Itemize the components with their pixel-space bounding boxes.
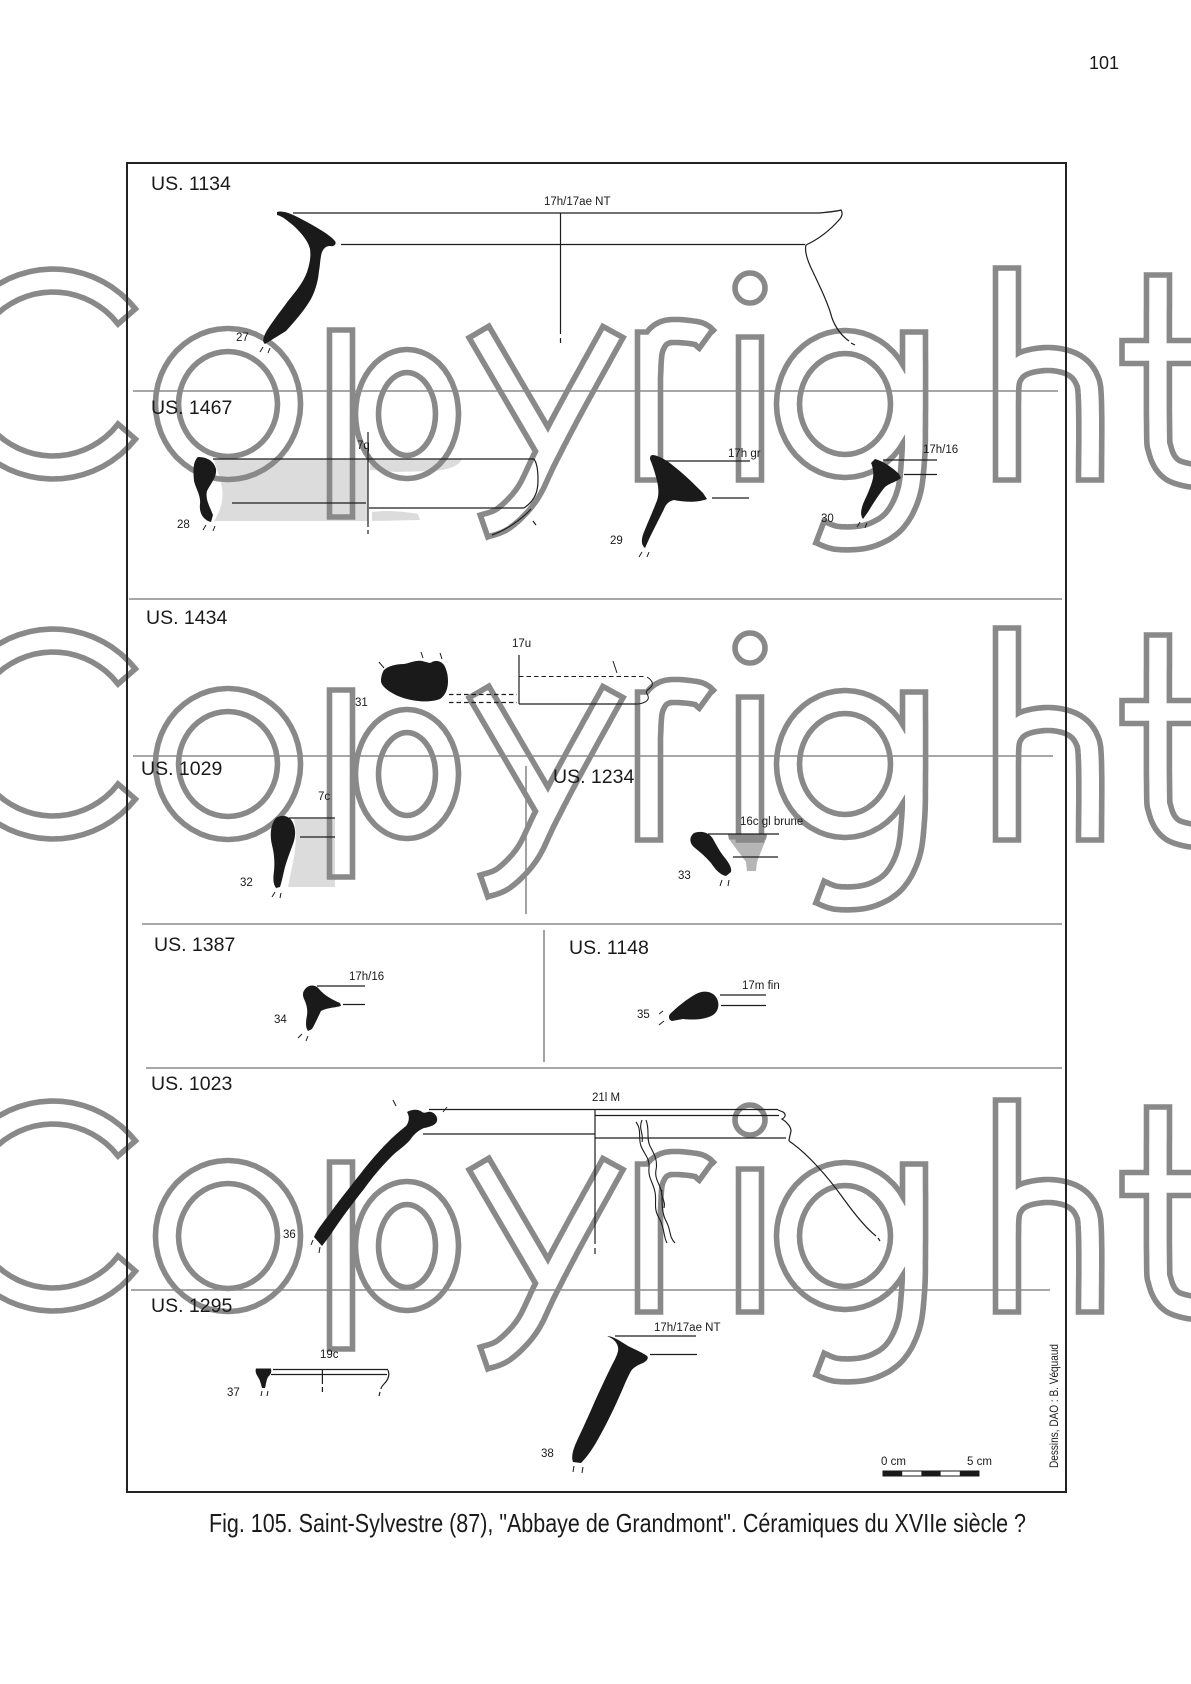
svg-text:US. 1387: US. 1387 [154,934,235,956]
svg-text:31: 31 [355,697,368,709]
svg-text:5 cm: 5 cm [967,1456,992,1468]
svg-text:17h gr: 17h gr [728,448,761,460]
svg-text:17m fin: 17m fin [742,980,780,992]
svg-text:US. 1295: US. 1295 [151,1295,232,1317]
svg-text:35: 35 [637,1009,650,1021]
svg-text:0 cm: 0 cm [881,1456,906,1468]
svg-text:US. 1467: US. 1467 [151,397,232,419]
svg-text:34: 34 [274,1014,287,1026]
svg-text:33: 33 [678,870,691,882]
svg-text:36: 36 [283,1229,296,1241]
svg-text:US. 1434: US. 1434 [146,607,227,629]
svg-text:29: 29 [610,535,623,547]
svg-text:7q: 7q [357,440,370,452]
svg-text:17h/17ae NT: 17h/17ae NT [544,196,611,208]
svg-text:US. 1234: US. 1234 [553,766,634,788]
svg-text:32: 32 [240,877,253,889]
svg-text:Dessins, DAO : B. Véquaud: Dessins, DAO : B. Véquaud [1047,1344,1061,1468]
svg-text:Fig. 105. Saint-Sylvestre (87): Fig. 105. Saint-Sylvestre (87), "Abbaye … [209,1508,1026,1538]
svg-text:7c: 7c [318,791,330,803]
svg-text:30: 30 [821,513,834,525]
svg-text:21l M: 21l M [592,1092,620,1104]
svg-text:17u: 17u [512,638,531,650]
svg-text:28: 28 [177,519,190,531]
svg-text:17h/17ae NT: 17h/17ae NT [654,1322,721,1334]
svg-text:37: 37 [227,1387,240,1399]
svg-text:US. 1023: US. 1023 [151,1073,232,1095]
svg-text:101: 101 [1089,53,1119,73]
svg-text:17h/16: 17h/16 [923,444,958,456]
svg-text:US. 1029: US. 1029 [141,758,222,780]
svg-text:US. 1148: US. 1148 [569,937,649,959]
svg-text:US. 1134: US. 1134 [151,173,231,195]
svg-text:27: 27 [236,332,249,344]
svg-text:17h/16: 17h/16 [349,971,384,983]
svg-text:38: 38 [541,1448,554,1460]
svg-text:16c gl brune: 16c gl brune [740,816,803,828]
svg-text:19c: 19c [320,1349,339,1361]
